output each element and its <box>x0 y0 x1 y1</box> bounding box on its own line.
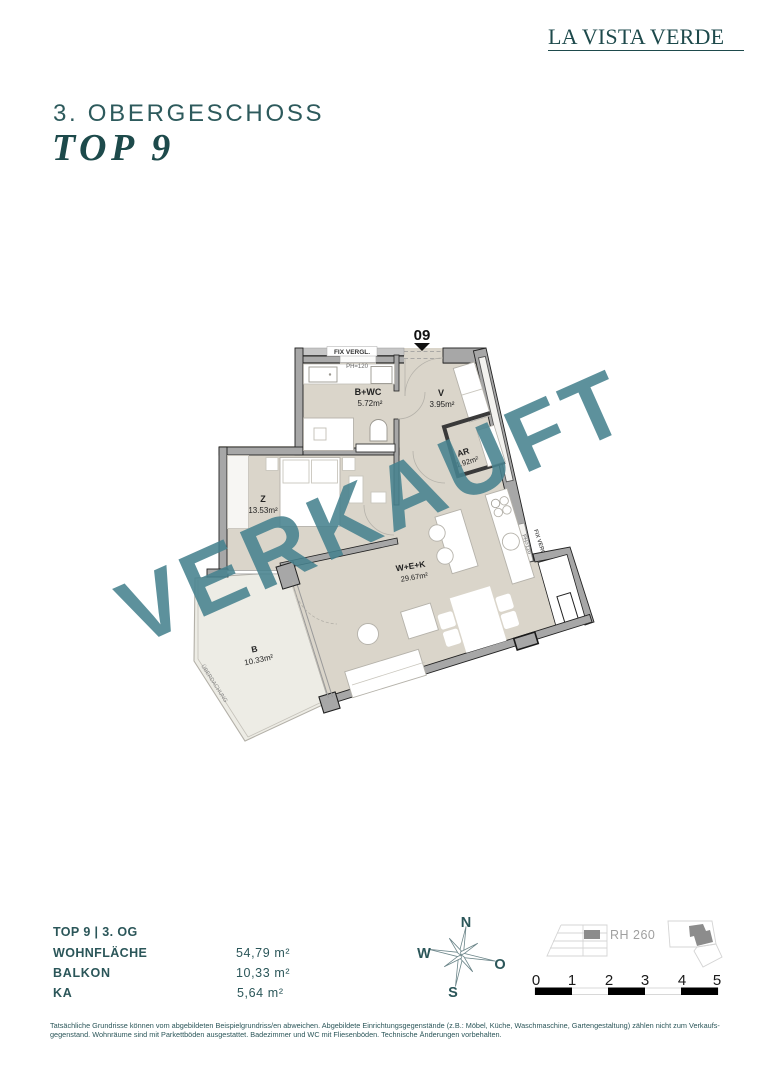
svg-text:N: N <box>461 915 471 931</box>
svg-text:4: 4 <box>678 972 686 989</box>
svg-text:2: 2 <box>605 972 613 989</box>
svg-text:RH 260: RH 260 <box>610 928 655 942</box>
svg-text:3: 3 <box>641 972 649 989</box>
svg-text:W: W <box>417 946 431 962</box>
svg-text:0: 0 <box>532 972 540 989</box>
svg-text:O: O <box>494 957 505 973</box>
svg-text:1: 1 <box>568 972 576 989</box>
svg-text:S: S <box>448 985 458 1001</box>
svg-text:5: 5 <box>713 972 721 989</box>
